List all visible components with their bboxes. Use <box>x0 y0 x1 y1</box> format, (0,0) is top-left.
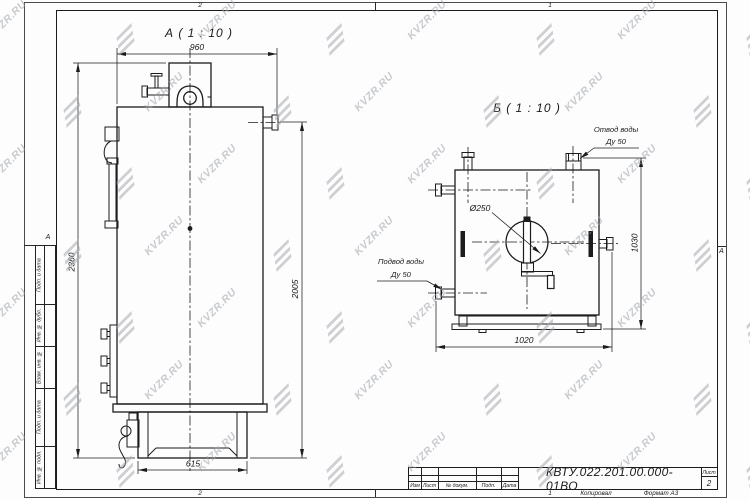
dim-diameter: Ø250 <box>469 203 491 213</box>
tb-col-data: Дата <box>503 483 517 489</box>
sheet-label: Лист <box>702 470 715 476</box>
dim-960: 960 <box>190 42 204 52</box>
view-b-geometry: Ø250 1020 1030 <box>377 146 646 352</box>
view-a-geometry: 960 2360 2005 615 <box>67 42 308 474</box>
sheet-number: 2 <box>707 479 711 488</box>
dim-615: 615 <box>186 459 200 469</box>
view-b-leaders: Ø250 <box>377 148 639 290</box>
dim-2360: 2360 <box>67 252 77 272</box>
tb-col-docnum: № докум. <box>446 483 469 489</box>
drawing-sheet: 2 1 2 1 А А Копировал Формат А3 Подп. и … <box>0 0 750 500</box>
title-block: Изм Лист № докум. Подп. Дата КВТУ.022.20… <box>408 467 718 490</box>
dim-2005: 2005 <box>290 279 300 299</box>
tb-col-izm: Изм <box>410 483 420 489</box>
drawing-designation: КВТУ.022.201.00.000-01ВО <box>546 465 673 493</box>
tb-col-list: Лист <box>423 483 436 489</box>
dim-1030: 1030 <box>630 233 640 252</box>
drawing-geometry: .o{fill:none;stroke:#1c1c1c;stroke-width… <box>0 0 750 500</box>
dim-1020: 1020 <box>515 335 534 345</box>
tb-col-podp: Подп. <box>482 483 496 489</box>
